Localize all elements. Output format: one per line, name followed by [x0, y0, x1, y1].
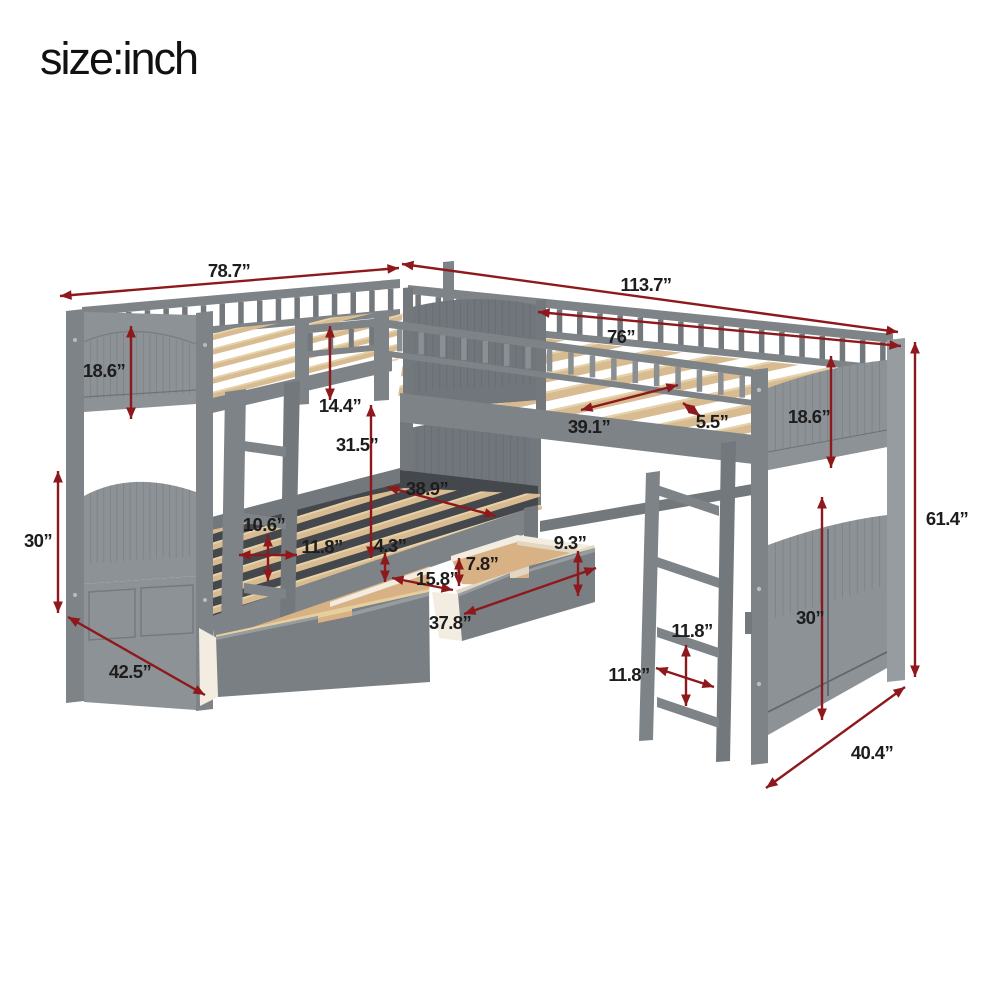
svg-text:11.8”: 11.8”	[671, 620, 712, 641]
svg-text:76”: 76”	[607, 326, 635, 347]
svg-text:4.3”: 4.3”	[374, 535, 407, 556]
svg-text:11.8”: 11.8”	[608, 664, 649, 685]
svg-text:15.8”: 15.8”	[416, 568, 458, 589]
svg-text:18.6”: 18.6”	[788, 406, 830, 427]
svg-text:30”: 30”	[24, 530, 52, 551]
svg-text:14.4”: 14.4”	[319, 395, 361, 416]
svg-text:40.4”: 40.4”	[851, 742, 893, 763]
svg-text:37.8”: 37.8”	[429, 612, 471, 633]
svg-text:9.3”: 9.3”	[554, 532, 587, 553]
svg-text:18.6”: 18.6”	[83, 360, 125, 381]
svg-text:10.6”: 10.6”	[243, 514, 285, 535]
svg-text:38.9”: 38.9”	[406, 478, 448, 499]
svg-text:11.8”: 11.8”	[301, 536, 342, 557]
svg-text:78.7”: 78.7”	[208, 260, 250, 281]
svg-text:61.4”: 61.4”	[926, 508, 968, 529]
svg-text:42.5”: 42.5”	[109, 661, 151, 682]
svg-text:39.1”: 39.1”	[568, 416, 610, 437]
svg-text:5.5”: 5.5”	[696, 411, 729, 432]
svg-text:30”: 30”	[796, 607, 824, 628]
svg-text:size:inch: size:inch	[40, 33, 197, 84]
svg-text:113.7”: 113.7”	[621, 274, 672, 295]
svg-text:31.5”: 31.5”	[336, 434, 378, 455]
svg-text:7.8”: 7.8”	[466, 553, 499, 574]
